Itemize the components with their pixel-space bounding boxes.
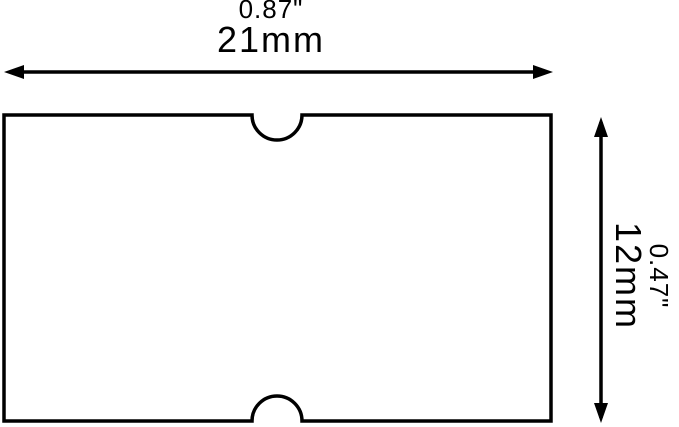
width-label-mm: 21mm <box>217 22 325 58</box>
diagram-drawing <box>0 0 679 427</box>
height-dimension-labels: 0.47" 12mm <box>610 206 672 346</box>
arrowhead-left-icon <box>4 65 24 79</box>
arrowhead-down-icon <box>594 403 608 423</box>
arrowhead-up-icon <box>594 117 608 137</box>
label-dimension-diagram: 0.87" 21mm 0.47" 12mm <box>0 0 679 427</box>
label-outline <box>4 115 551 421</box>
height-label-mm: 12mm <box>610 206 646 346</box>
height-label-inches: 0.47" <box>646 206 672 346</box>
arrowhead-right-icon <box>533 65 553 79</box>
width-dimension-arrow <box>4 65 553 79</box>
width-dimension-labels: 0.87" 21mm <box>217 0 325 58</box>
height-dimension-arrow <box>594 117 608 423</box>
